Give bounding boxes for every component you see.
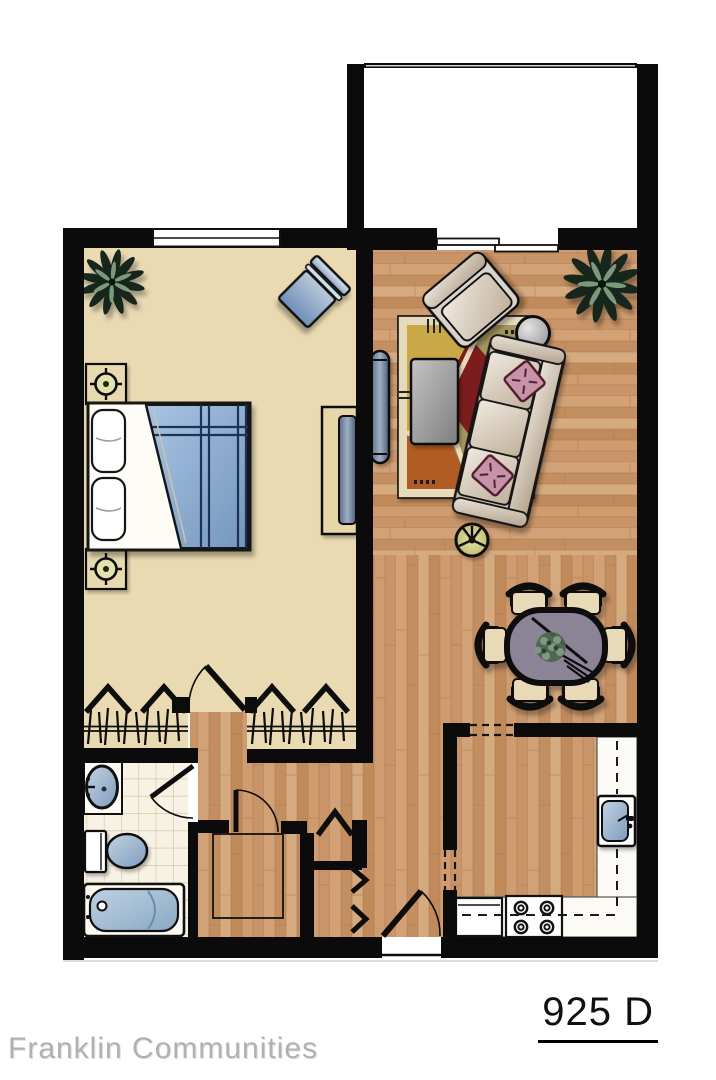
wall-small-closet-east [352, 820, 367, 868]
tv-console-icon [371, 351, 389, 463]
wall-bedroom-living-divider [356, 248, 373, 763]
wall-living-north-right [558, 228, 637, 250]
bathtub-icon [84, 884, 184, 936]
coffee-table-icon [411, 359, 458, 444]
nightstand [86, 549, 126, 589]
balcony-floor [364, 68, 637, 228]
wall-closet-north-left [198, 820, 229, 833]
wall-kitchen-north-left [443, 723, 470, 737]
wall-kitchen-north-right [514, 723, 637, 737]
bed-icon [88, 403, 250, 550]
floorplan-drawing [0, 0, 716, 1080]
window-icon [153, 229, 280, 247]
bathroom-vanity [84, 760, 122, 814]
wall-closet2-south [247, 749, 373, 763]
kitchen-passthrough-left [443, 850, 457, 890]
wall-kitchen-west-upper [443, 737, 457, 850]
dining-table-icon [507, 610, 605, 683]
dresser-tv-icon [322, 407, 357, 534]
stove-icon [506, 896, 562, 937]
floorplan-page: 925 D Franklin Communities [0, 0, 716, 1080]
wall-bathroom-north [63, 748, 198, 763]
wall-balcony-west [347, 64, 364, 250]
wall-kitchen-west-lower [443, 890, 457, 937]
kitchen-passthrough-top [470, 723, 514, 737]
wall-south-left [63, 937, 382, 958]
balcony-railing-line [366, 65, 635, 67]
wall-living-north-left [347, 228, 437, 250]
plan-base-line [63, 960, 658, 962]
kitchen-sink-icon [598, 796, 635, 846]
floor-lamp-icon [456, 524, 488, 556]
brand-watermark-label: Franklin Communities [8, 1032, 318, 1066]
wall-closet-north-right [281, 821, 307, 834]
wall-bathroom-east [188, 822, 198, 937]
wall-closet-divider [300, 833, 314, 937]
toilet-icon [85, 831, 147, 872]
sliding-door-icon [437, 239, 558, 252]
unit-number-label: 925 D [538, 990, 658, 1043]
nightstand [86, 364, 126, 404]
wall-west [63, 228, 84, 960]
wall-east [637, 64, 658, 958]
wall-south-right [441, 937, 637, 958]
refrigerator-icon [456, 898, 502, 936]
